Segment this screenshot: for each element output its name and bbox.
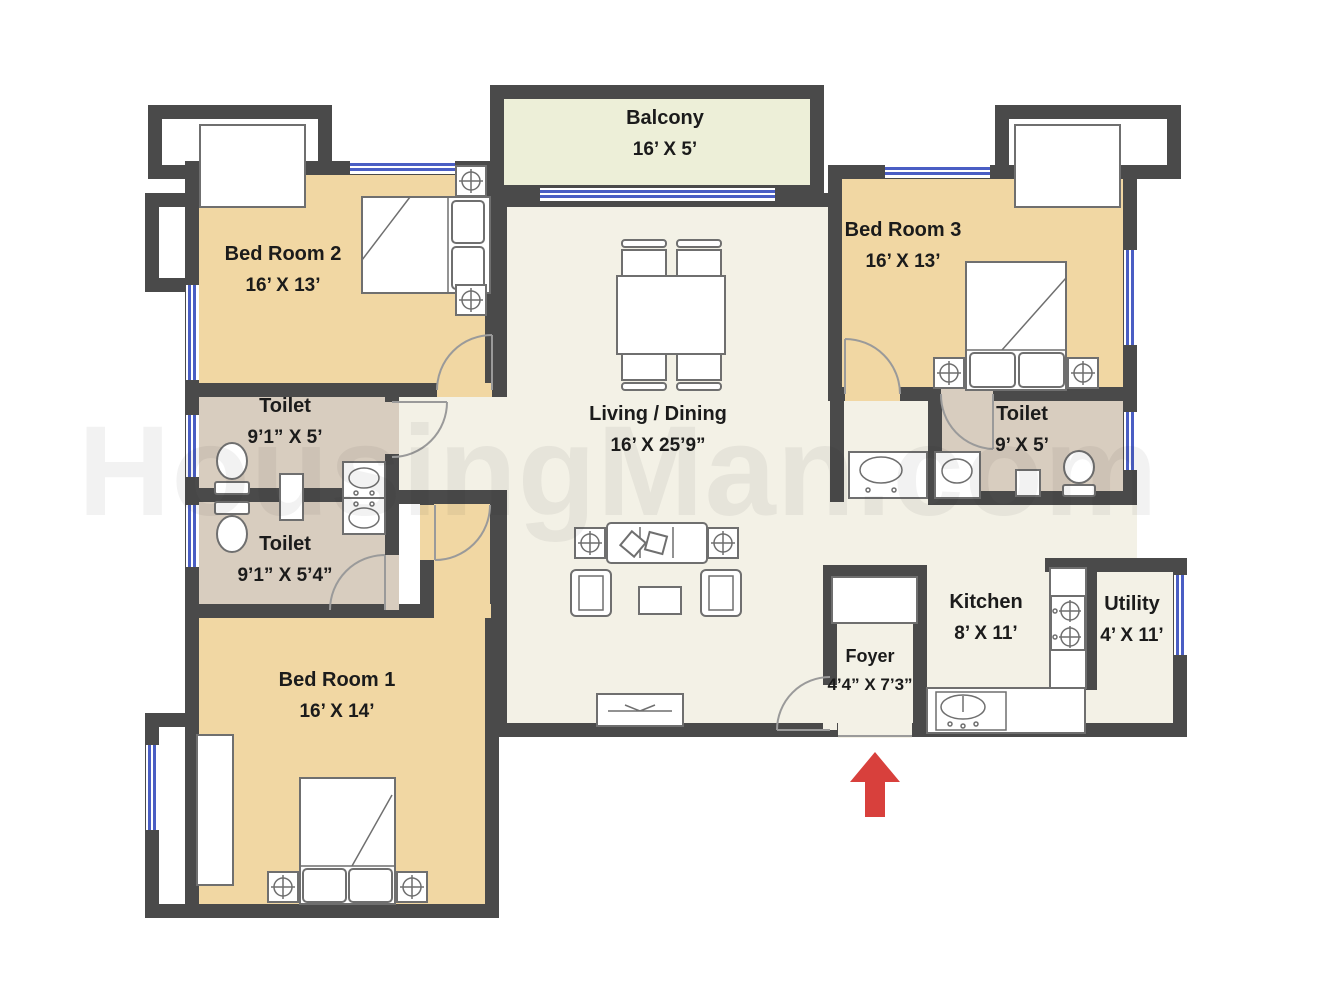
room-name: Bed Room 2: [133, 242, 433, 266]
pillow-icon: [303, 869, 346, 902]
nightstand-icon: [397, 872, 427, 902]
wardrobe-icon: [197, 735, 233, 885]
room-name: Bed Room 3: [753, 218, 1053, 242]
room-dims: 16’ X 13’: [133, 275, 433, 298]
nightstand-icon: [456, 166, 486, 196]
room-name: Toilet: [185, 532, 385, 556]
washbasin-icon: [343, 462, 385, 498]
room-label-bedroom1: Bed Room 1 16’ X 14’: [187, 668, 487, 724]
entrance-arrow-icon: [850, 752, 900, 817]
room-name: Toilet: [185, 394, 385, 418]
cushion-icon: [645, 532, 667, 554]
window: [1124, 412, 1137, 470]
side-table-icon: [708, 528, 738, 558]
tv-unit-icon: [597, 694, 683, 726]
room-label-living: Living / Dining 16’ X 25’9”: [508, 402, 808, 458]
room-dims: 9’1” X 5’4”: [185, 565, 385, 588]
armchair-icon: [571, 570, 611, 616]
shelf-icon: [1016, 470, 1040, 496]
window: [350, 161, 455, 174]
armchair-icon: [701, 570, 741, 616]
wardrobe-icon: [200, 125, 305, 207]
pillow-icon: [1019, 353, 1064, 387]
washbasin-icon: [849, 452, 927, 498]
window: [540, 188, 775, 201]
room-name: Utility: [1052, 592, 1212, 616]
chair-icon: [677, 250, 721, 276]
nightstand-icon: [1068, 358, 1098, 388]
dining-table-icon: [617, 276, 725, 354]
chair-icon: [677, 383, 721, 390]
pillow-icon: [452, 201, 484, 243]
pillow-icon: [349, 869, 392, 902]
chair-icon: [677, 354, 721, 380]
outside-notch: [1137, 186, 1195, 558]
shelf-icon: [280, 474, 303, 520]
window: [1124, 250, 1137, 345]
nightstand-icon: [268, 872, 298, 902]
room-name: Bed Room 1: [187, 668, 487, 692]
room-label-bedroom2: Bed Room 2 16’ X 13’: [133, 242, 433, 298]
room-name: Toilet: [922, 402, 1122, 426]
room-dims: 16’ X 14’: [187, 701, 487, 724]
room-name: Balcony: [515, 106, 815, 130]
room-dims: 16’ X 25’9”: [508, 435, 808, 458]
chair-icon: [677, 240, 721, 247]
chair-icon: [622, 250, 666, 276]
wardrobe-icon: [1015, 125, 1120, 207]
chair-icon: [622, 354, 666, 380]
window: [885, 165, 990, 178]
pillow-icon: [452, 247, 484, 289]
room-label-toilet-top-left: Toilet 9’1” X 5’: [185, 394, 385, 450]
washbasin-icon: [935, 452, 980, 498]
floor-plan: HousingMan.com Balcony 16’ X 5’ Bed Room…: [0, 0, 1333, 1000]
nightstand-icon: [456, 285, 486, 315]
window: [146, 745, 159, 830]
room-label-bedroom3: Bed Room 3 16’ X 13’: [753, 218, 1053, 274]
room-dims: 4’ X 11’: [1052, 625, 1212, 648]
room-dims: 16’ X 5’: [515, 139, 815, 162]
room-dims: 4’4” X 7’3”: [790, 675, 950, 695]
room-dims: 9’ X 5’: [922, 435, 1122, 458]
corridor-floor: [392, 390, 497, 497]
room-name: Living / Dining: [508, 402, 808, 426]
chair-icon: [622, 383, 666, 390]
washbasin-icon: [343, 498, 385, 534]
room-label-toilet-right: Toilet 9’ X 5’: [922, 402, 1122, 458]
coffee-table-icon: [639, 587, 681, 614]
room-label-balcony: Balcony 16’ X 5’: [515, 106, 815, 162]
pillow-icon: [970, 353, 1015, 387]
room-label-foyer: Foyer 4’4” X 7’3”: [790, 646, 950, 695]
room-label-toilet-bottom-left: Toilet 9’1” X 5’4”: [185, 532, 385, 588]
window: [186, 285, 199, 380]
room-label-utility: Utility 4’ X 11’: [1052, 592, 1212, 648]
chair-icon: [622, 240, 666, 247]
room-dims: 16’ X 13’: [753, 251, 1053, 274]
nightstand-icon: [934, 358, 964, 388]
room-dims: 9’1” X 5’: [185, 427, 385, 450]
side-table-icon: [575, 528, 605, 558]
room-name: Foyer: [790, 646, 950, 668]
